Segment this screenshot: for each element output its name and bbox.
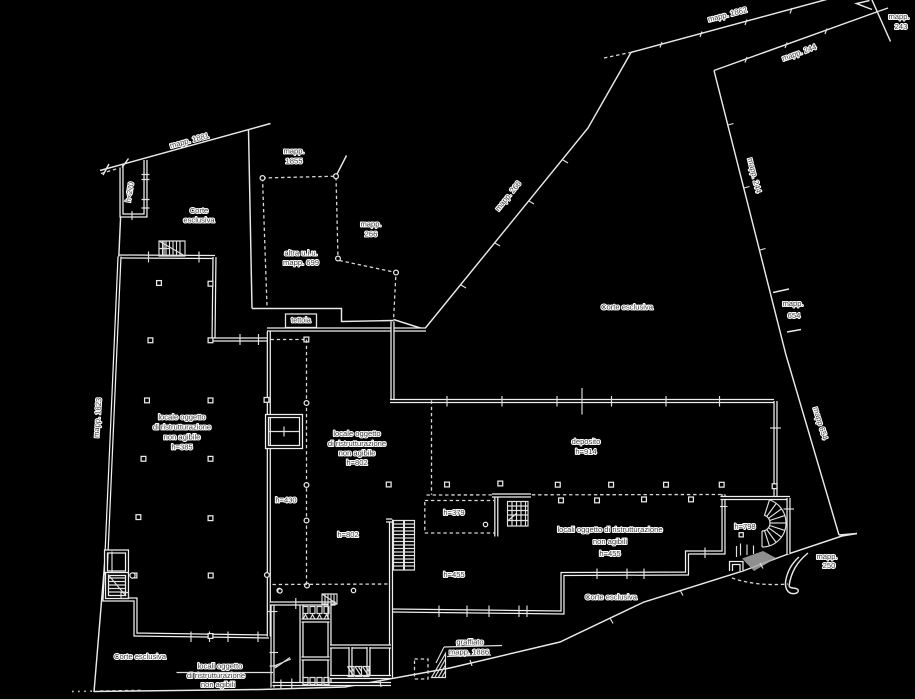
- svg-text:h=802: h=802: [346, 458, 367, 467]
- svg-text:locale oggetto: locale oggetto: [158, 413, 205, 422]
- svg-text:250: 250: [823, 561, 836, 570]
- svg-text:locali oggetto di ristrutturaz: locali oggetto di ristrutturazione: [557, 525, 662, 534]
- svg-text:Corte: Corte: [190, 206, 209, 215]
- svg-text:di ristrutturazione: di ristrutturazione: [328, 439, 386, 448]
- svg-text:deposito: deposito: [572, 437, 601, 446]
- svg-text:non agibile: non agibile: [339, 449, 376, 458]
- svg-text:mapp.: mapp.: [888, 12, 909, 21]
- svg-text:tettoia: tettoia: [291, 316, 311, 325]
- svg-text:h=430: h=430: [275, 496, 296, 505]
- svg-text:locale oggetto: locale oggetto: [333, 429, 380, 438]
- svg-text:graffiato: graffiato: [456, 638, 483, 647]
- svg-text:654: 654: [788, 311, 801, 320]
- svg-text:mapp. 699: mapp. 699: [283, 258, 319, 267]
- svg-text:h=455: h=455: [599, 549, 620, 558]
- svg-text:h=914: h=914: [575, 447, 596, 456]
- svg-text:1855: 1855: [286, 157, 303, 166]
- svg-text:h=798: h=798: [734, 522, 755, 531]
- svg-text:243: 243: [895, 22, 908, 31]
- svg-text:esclusiva: esclusiva: [183, 216, 215, 225]
- svg-text:mapp.: mapp.: [816, 552, 837, 561]
- svg-text:h=802: h=802: [337, 530, 358, 539]
- svg-text:altra u.i.u.: altra u.i.u.: [284, 249, 317, 258]
- svg-text:non agibili: non agibili: [201, 680, 236, 689]
- svg-text:di ristrutturazione: di ristrutturazione: [153, 423, 211, 432]
- svg-text:h=455: h=455: [443, 570, 464, 579]
- svg-text:non agibile: non agibile: [164, 433, 201, 442]
- svg-text:mapp.: mapp.: [360, 220, 381, 229]
- svg-text:locali oggetto: locali oggetto: [198, 662, 243, 671]
- svg-text:Corte esclusiva: Corte esclusiva: [601, 303, 654, 312]
- svg-text:mapp.: mapp.: [283, 147, 304, 156]
- svg-text:Corte esclusiva: Corte esclusiva: [114, 652, 167, 661]
- svg-text:h=379: h=379: [443, 508, 464, 517]
- svg-text:h=385: h=385: [171, 443, 192, 452]
- svg-text:266: 266: [365, 230, 378, 239]
- svg-text:non agibili: non agibili: [593, 537, 628, 546]
- svg-text:Corte esclusiva: Corte esclusiva: [585, 593, 638, 602]
- svg-text:mapp.: mapp.: [782, 299, 803, 308]
